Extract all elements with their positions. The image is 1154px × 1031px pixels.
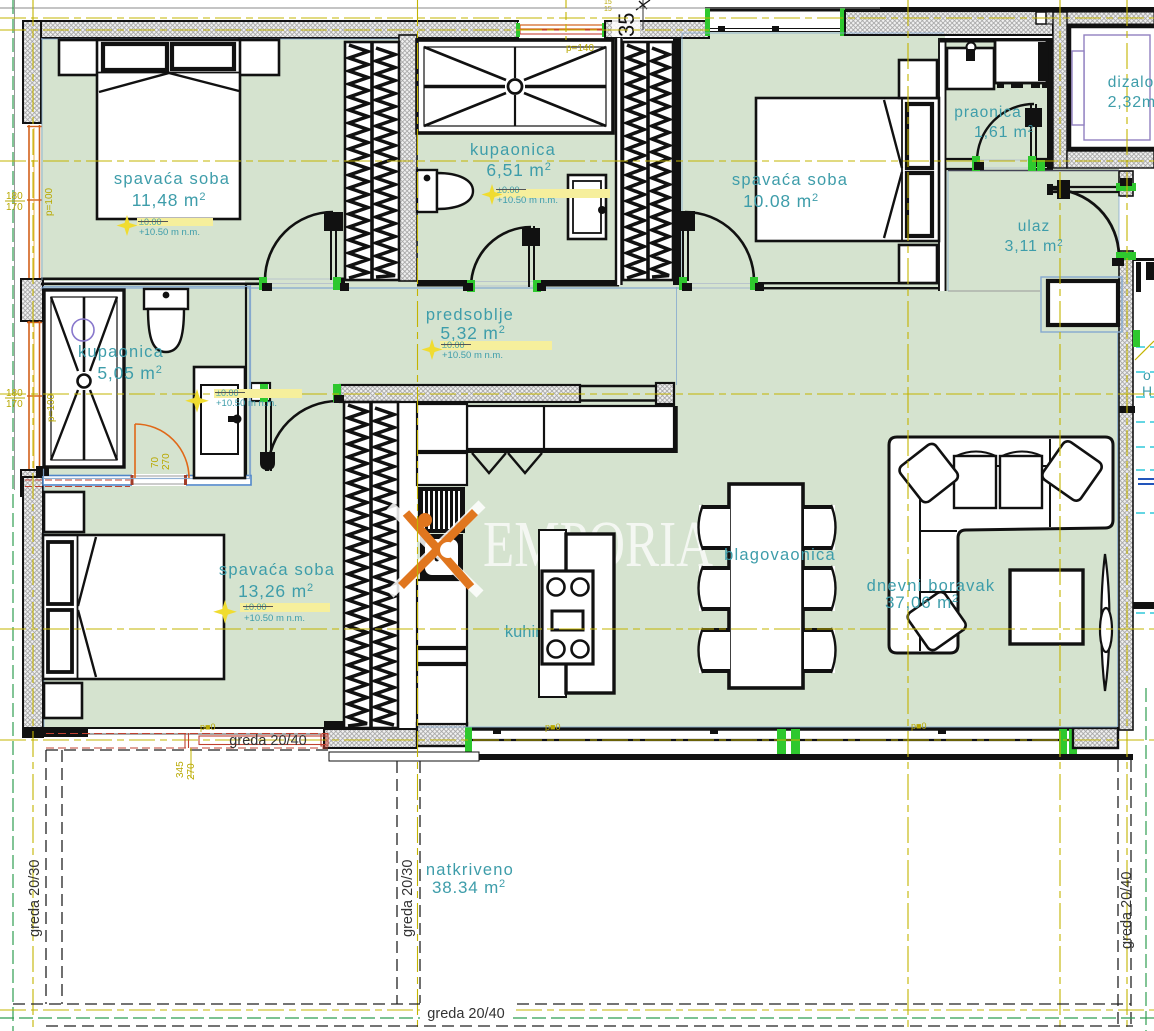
svg-text:spavaća soba: spavaća soba — [114, 170, 230, 188]
svg-text:spavaća soba: spavaća soba — [219, 561, 335, 579]
svg-text:p■0: p■0 — [545, 722, 560, 732]
svg-text:dizalo: dizalo — [1108, 74, 1154, 91]
svg-text:ulaz: ulaz — [1018, 218, 1050, 235]
svg-text:greda 20/40: greda 20/40 — [229, 733, 306, 749]
svg-text:+10.50 m n.m.: +10.50 m n.m. — [244, 613, 305, 624]
svg-text:p=100: p=100 — [46, 393, 57, 422]
svg-text:blagovaonica: blagovaonica — [724, 546, 836, 564]
svg-text:170: 170 — [6, 399, 23, 410]
svg-text:70: 70 — [150, 456, 161, 468]
svg-text:6,51 m2: 6,51 m2 — [486, 160, 551, 180]
svg-text:38.34 m2: 38.34 m2 — [432, 878, 506, 897]
svg-text:natkriveno: natkriveno — [426, 861, 514, 879]
svg-text:180: 180 — [6, 191, 23, 202]
svg-text:kupaonica: kupaonica — [78, 343, 164, 361]
svg-text:+10.50 m n.m.: +10.50 m n.m. — [497, 195, 558, 206]
svg-text:greda 20/30: greda 20/30 — [27, 860, 43, 937]
svg-text:greda 20/30: greda 20/30 — [400, 860, 416, 937]
svg-text:+10.50 m n.m.: +10.50 m n.m. — [442, 350, 503, 361]
svg-text:15: 15 — [604, 6, 612, 13]
svg-text:270: 270 — [186, 763, 197, 780]
svg-text:p■0: p■0 — [200, 722, 215, 732]
svg-text:11,48 m2: 11,48 m2 — [132, 190, 206, 210]
svg-text:greda 20/40: greda 20/40 — [427, 1006, 504, 1022]
svg-text:2,32m2: 2,32m2 — [1108, 94, 1154, 111]
svg-text:p■0: p■0 — [911, 721, 926, 731]
svg-text:spavaća soba: spavaća soba — [732, 171, 848, 189]
svg-text:10.08 m2: 10.08 m2 — [743, 191, 819, 211]
svg-text:180: 180 — [6, 388, 23, 399]
svg-text:o: o — [1143, 367, 1151, 383]
svg-text:1,61 m2: 1,61 m2 — [974, 124, 1034, 141]
svg-text:170: 170 — [6, 202, 23, 213]
svg-text:37,06 m2: 37,06 m2 — [885, 593, 959, 612]
svg-text:praonica: praonica — [954, 104, 1021, 121]
svg-text:predsoblje: predsoblje — [426, 306, 514, 324]
svg-text:H: H — [1142, 383, 1152, 399]
svg-text:35: 35 — [614, 13, 639, 37]
svg-text:greda 20/40: greda 20/40 — [1119, 872, 1135, 949]
svg-text:+10.50 m n.m.: +10.50 m n.m. — [216, 398, 277, 409]
svg-text:kupaonica: kupaonica — [470, 141, 556, 159]
svg-text:3,11 m2: 3,11 m2 — [1005, 238, 1064, 255]
svg-text:345: 345 — [175, 761, 186, 778]
svg-text:5,05 m2: 5,05 m2 — [97, 363, 162, 383]
svg-text:+10.50 m n.m.: +10.50 m n.m. — [139, 227, 200, 238]
svg-text:270: 270 — [161, 453, 172, 470]
svg-text:p=140: p=140 — [566, 43, 595, 54]
svg-text:13,26 m2: 13,26 m2 — [238, 581, 314, 601]
svg-text:p=100: p=100 — [44, 187, 55, 216]
